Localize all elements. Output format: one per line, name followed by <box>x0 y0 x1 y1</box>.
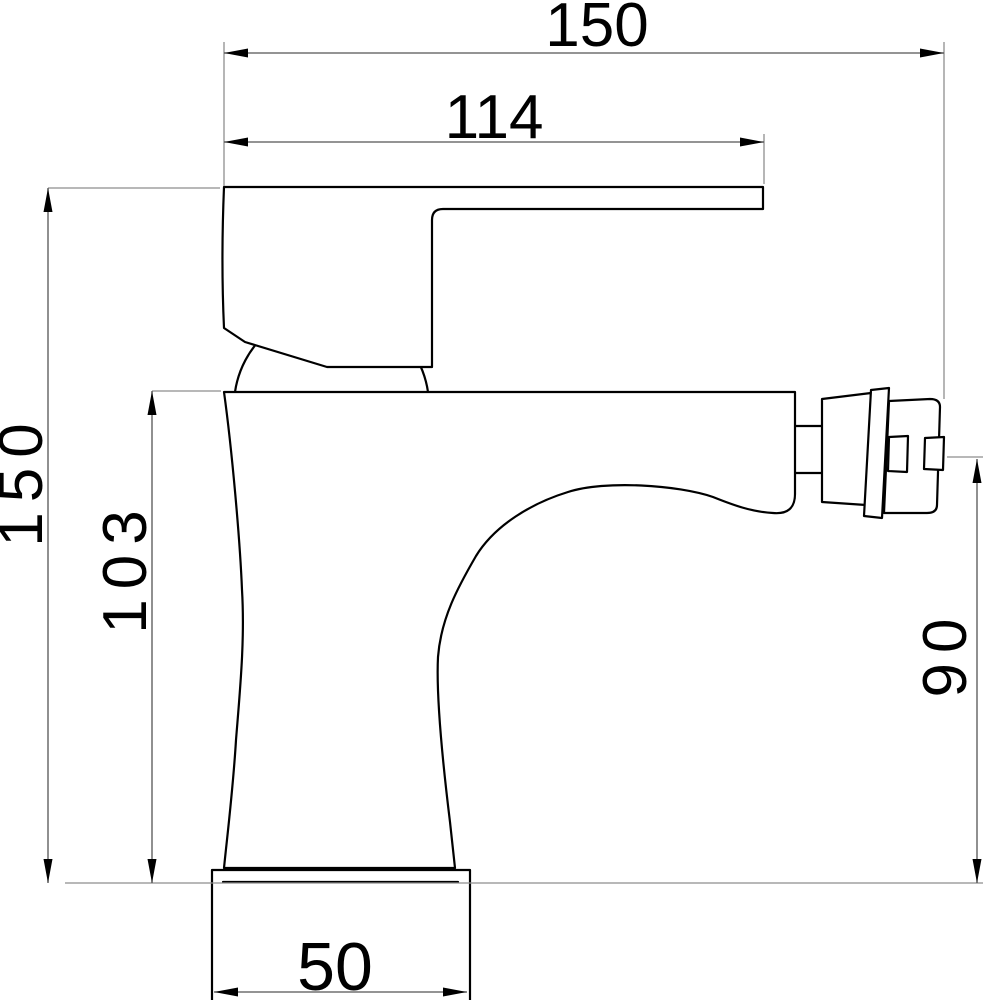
body-and-spout-outline <box>224 392 795 868</box>
label-overall-height: 150 <box>0 413 56 546</box>
arrow-body-height-top <box>148 391 157 415</box>
arrow-overall-height-top <box>44 188 53 212</box>
arrow-overall-width-right <box>920 49 944 58</box>
handle-outline <box>223 187 764 367</box>
arrow-body-height-bottom <box>148 859 157 883</box>
aerator-notch-outlet <box>924 437 944 470</box>
arrow-outlet-height-top <box>973 459 982 483</box>
label-overall-width: 150 <box>545 0 648 60</box>
faucet-outline <box>212 187 944 1000</box>
arrow-overall-width-left <box>224 49 248 58</box>
label-base-width: 50 <box>297 929 373 1000</box>
arrow-handle-length-right <box>740 138 764 147</box>
faucet-dimension-drawing: 150 114 150 103 90 50 <box>0 0 984 1000</box>
technical-drawing-canvas: 150 114 150 103 90 50 <box>0 0 984 1000</box>
arrow-outlet-height-bottom <box>973 859 982 883</box>
arrow-overall-height-bottom <box>44 859 53 883</box>
label-outlet-height: 90 <box>911 609 980 698</box>
label-handle-length: 114 <box>445 83 544 152</box>
label-body-height: 103 <box>91 500 160 633</box>
aerator-neck-lines <box>796 426 822 473</box>
arrow-handle-length-left <box>224 138 248 147</box>
aerator-notch-inner <box>888 436 908 472</box>
aerator-block-inner <box>822 393 871 505</box>
